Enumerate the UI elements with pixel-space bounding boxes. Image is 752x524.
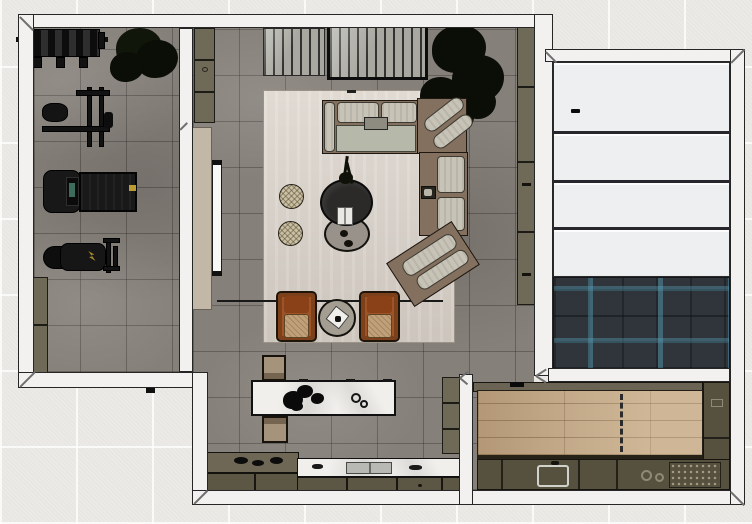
counter-divider — [616, 460, 618, 489]
pouf — [279, 184, 304, 209]
decor-blob — [311, 393, 324, 404]
door-cap — [212, 160, 222, 165]
table-book — [337, 207, 353, 225]
cabinet-mark — [522, 273, 531, 276]
cabinet-divider — [443, 402, 459, 404]
counter-item — [409, 465, 422, 470]
barbell-rack — [26, 29, 100, 57]
wall-left-gym — [18, 14, 34, 388]
wall-right-outer — [730, 49, 745, 505]
cabinet-divider — [195, 59, 214, 61]
utility-wood-floor — [477, 390, 703, 456]
sofa-arm-cushion — [324, 102, 335, 152]
treadmill-belt — [79, 172, 137, 212]
living-wall-cabinet — [517, 27, 535, 305]
machine-base — [42, 126, 110, 132]
living-corner-cabinet — [194, 28, 215, 123]
faucet-mark — [551, 461, 559, 465]
wall-wing-top — [545, 49, 745, 62]
weight-bench — [43, 236, 121, 274]
cooktop-burner — [270, 457, 283, 464]
burner-unit — [641, 470, 652, 481]
cooktop-burner — [234, 457, 248, 464]
burner-unit — [655, 473, 664, 482]
sofa-side-shelf-item — [424, 189, 432, 196]
cabinet-mark — [202, 67, 208, 72]
herringbone-floor — [553, 277, 730, 370]
island-edge-mark — [383, 379, 392, 382]
bench-foot — [103, 266, 120, 271]
island-edge-mark — [299, 379, 308, 382]
machine-seat — [42, 103, 68, 122]
cabinet-divider — [704, 437, 729, 439]
decor-blob — [291, 402, 303, 411]
book-spine — [344, 208, 346, 224]
round-side-table — [318, 299, 356, 337]
kitchen-side-cabinet — [442, 377, 460, 454]
rug-mark — [347, 90, 356, 93]
bench-shade — [264, 418, 286, 424]
cabinet-divider — [518, 231, 534, 233]
wall-gym-living-divider — [179, 28, 193, 372]
rack-foot — [79, 57, 88, 68]
cabinet-divider — [518, 86, 534, 88]
sink-divider — [369, 463, 371, 473]
wall-gym-bottom — [18, 372, 208, 388]
table-decor-dot — [340, 230, 348, 237]
armchair-left — [276, 291, 317, 342]
island-bowl — [360, 400, 368, 408]
framed-slatted-sideboard — [327, 22, 428, 80]
sink-unit — [537, 465, 569, 487]
treadmill-logo — [129, 185, 136, 191]
armchair-seat — [284, 314, 309, 338]
marble-sink-counter — [297, 458, 460, 477]
slatted-sideboard — [263, 28, 325, 76]
rack-post — [98, 32, 105, 49]
sliding-door — [212, 163, 222, 273]
utility-band-mark — [510, 382, 524, 387]
armchair-back — [367, 296, 392, 313]
bench-leg — [113, 246, 118, 267]
utility-counter-run — [477, 459, 730, 490]
counter-divider — [501, 460, 503, 489]
kitchen-sink — [346, 462, 392, 474]
cabinet-divider — [443, 428, 459, 430]
counter-item — [312, 464, 323, 469]
table-decor-dot — [344, 240, 353, 247]
utility-floor-divider-dashed — [620, 394, 623, 452]
machine-pedal — [104, 112, 113, 128]
treadmill — [43, 169, 138, 214]
exterior-door-stop — [146, 388, 155, 393]
island-bench — [262, 355, 286, 381]
utility-side-cabinet — [703, 382, 730, 460]
white-panel-4 — [554, 230, 729, 275]
side-table-dot — [335, 316, 341, 322]
panel-room-floor — [553, 62, 730, 277]
island-decor — [283, 385, 327, 413]
drawer-knob — [418, 484, 422, 487]
wall-kitchen-left — [192, 372, 208, 505]
counter-divider — [254, 474, 256, 491]
counter-divider — [578, 460, 580, 489]
gym-plant — [110, 26, 180, 84]
armchair-back — [284, 296, 309, 313]
bench-shade — [264, 373, 284, 379]
island-edge-mark — [346, 379, 355, 382]
cabinet-mark — [711, 399, 723, 407]
white-panel-2 — [554, 134, 729, 183]
wall-living-right — [534, 14, 553, 376]
treadmill-screen-glow — [69, 183, 75, 197]
wall-top-main — [18, 14, 552, 28]
floor-plan-viewport[interactable] — [0, 0, 752, 524]
cooktop-counter — [207, 452, 299, 473]
rack-foot — [33, 57, 42, 68]
door-cap — [212, 271, 222, 276]
white-panel-1 — [554, 63, 729, 134]
armchair-seat — [367, 314, 392, 338]
armchair-right — [359, 291, 400, 342]
wall-herringbone-bottom — [548, 368, 730, 382]
machine-rail — [87, 87, 92, 147]
pouf — [278, 221, 303, 246]
plant-foliage — [110, 52, 144, 82]
cabinet-divider — [518, 161, 534, 163]
sofa-tray — [364, 117, 388, 130]
sofa-right-cushion — [437, 156, 465, 193]
kitchen-island — [251, 380, 396, 416]
table-plant-sprig — [332, 156, 362, 192]
rack-foot — [56, 57, 65, 68]
white-panel-3 — [554, 183, 729, 230]
cooktop-burner — [252, 460, 264, 466]
speckled-appliance — [669, 462, 721, 488]
cable-machine — [40, 85, 116, 149]
island-bench — [262, 416, 288, 443]
door-panel — [192, 127, 212, 310]
cabinet-mark — [522, 183, 531, 186]
wall-kitchen-utility-divider — [459, 374, 473, 505]
bench-foot — [103, 238, 120, 243]
cabinet-divider — [195, 91, 214, 93]
bench-backpad — [60, 243, 106, 271]
panel-mark — [571, 109, 580, 113]
machine-crossbar — [76, 90, 110, 96]
